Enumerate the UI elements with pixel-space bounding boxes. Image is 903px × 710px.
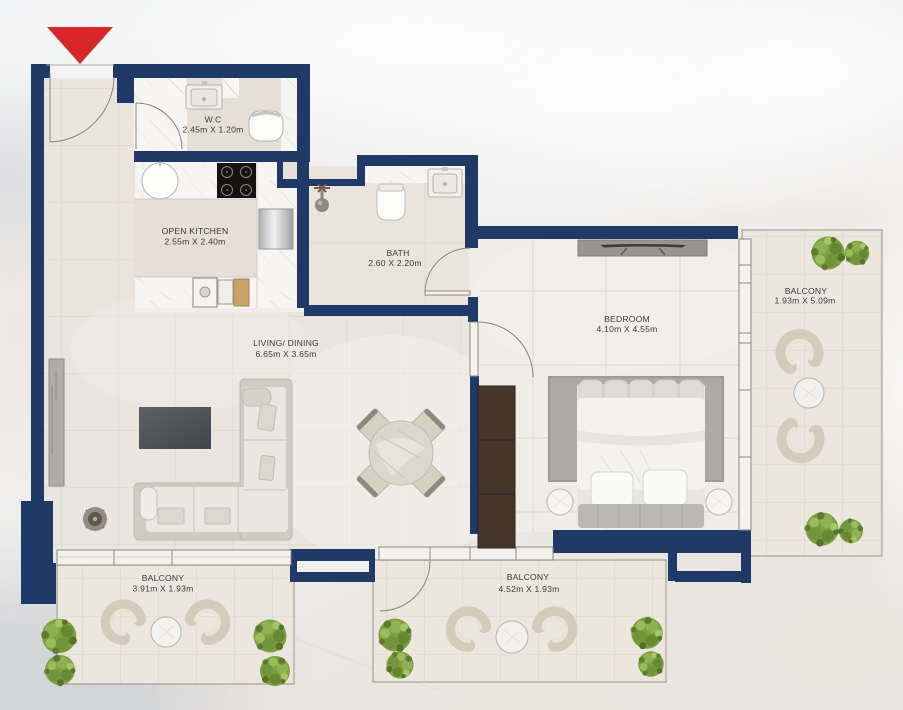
- svg-text:2.55m X 2.40m: 2.55m X 2.40m: [165, 237, 226, 247]
- svg-text:W.C: W.C: [205, 115, 222, 125]
- svg-text:3.91m X 1.93m: 3.91m X 1.93m: [133, 584, 194, 594]
- svg-text:BALCONY: BALCONY: [142, 573, 185, 583]
- svg-text:1.93m X 5.09m: 1.93m X 5.09m: [775, 296, 836, 306]
- svg-text:BATH: BATH: [386, 248, 409, 258]
- svg-text:4.10m X 4.55m: 4.10m X 4.55m: [597, 324, 658, 334]
- svg-text:2.45m X 1.20m: 2.45m X 1.20m: [183, 125, 244, 135]
- svg-text:OPEN KITCHEN: OPEN KITCHEN: [162, 226, 229, 236]
- svg-text:LIVING/ DINING: LIVING/ DINING: [253, 338, 319, 348]
- svg-text:BEDROOM: BEDROOM: [604, 314, 650, 324]
- svg-text:6.65m X 3.65m: 6.65m X 3.65m: [256, 349, 317, 359]
- svg-text:BALCONY: BALCONY: [785, 286, 828, 296]
- svg-text:4.52m X 1.93m: 4.52m X 1.93m: [499, 584, 560, 594]
- svg-text:BALCONY: BALCONY: [507, 572, 550, 582]
- svg-text:2.60 X 2.20m: 2.60 X 2.20m: [368, 258, 422, 268]
